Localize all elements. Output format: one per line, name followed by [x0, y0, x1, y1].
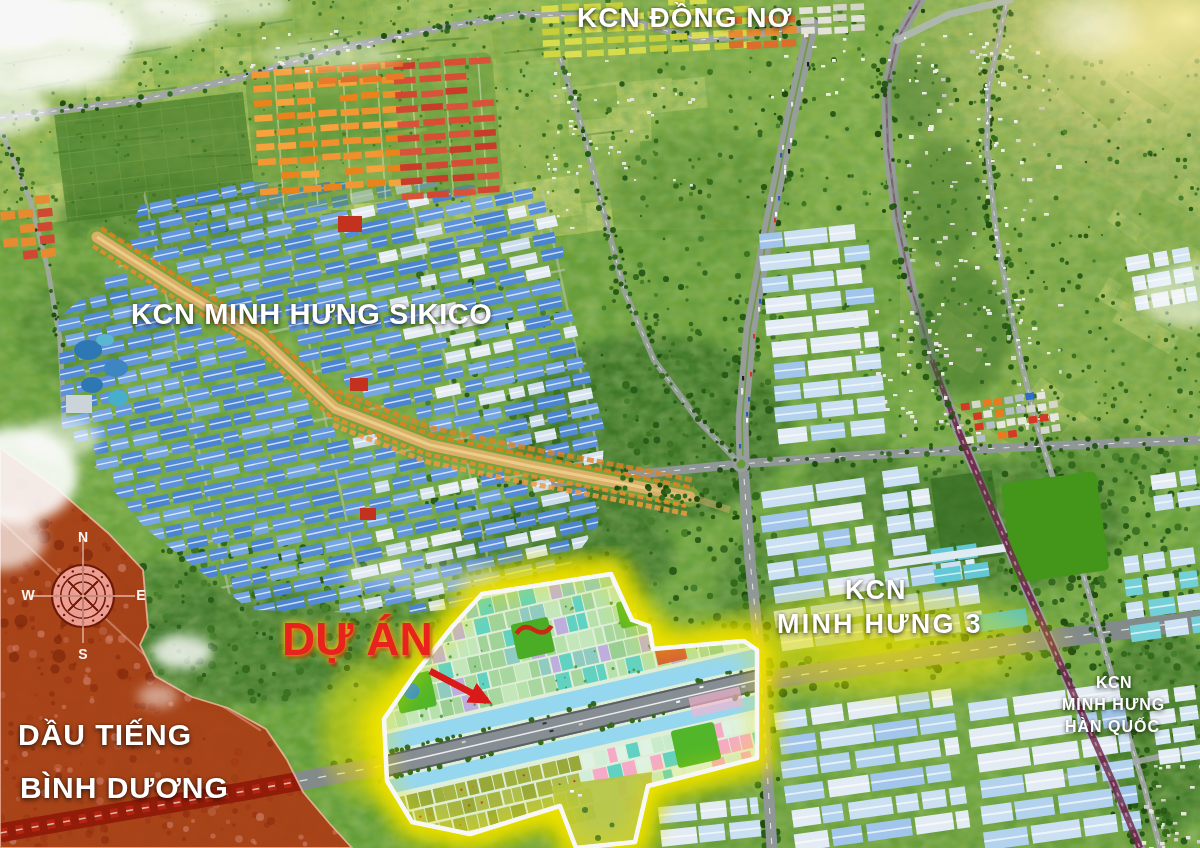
svg-text:N: N	[78, 529, 88, 545]
svg-text:W: W	[21, 587, 35, 603]
svg-text:E: E	[136, 587, 145, 603]
svg-text:S: S	[78, 646, 87, 662]
